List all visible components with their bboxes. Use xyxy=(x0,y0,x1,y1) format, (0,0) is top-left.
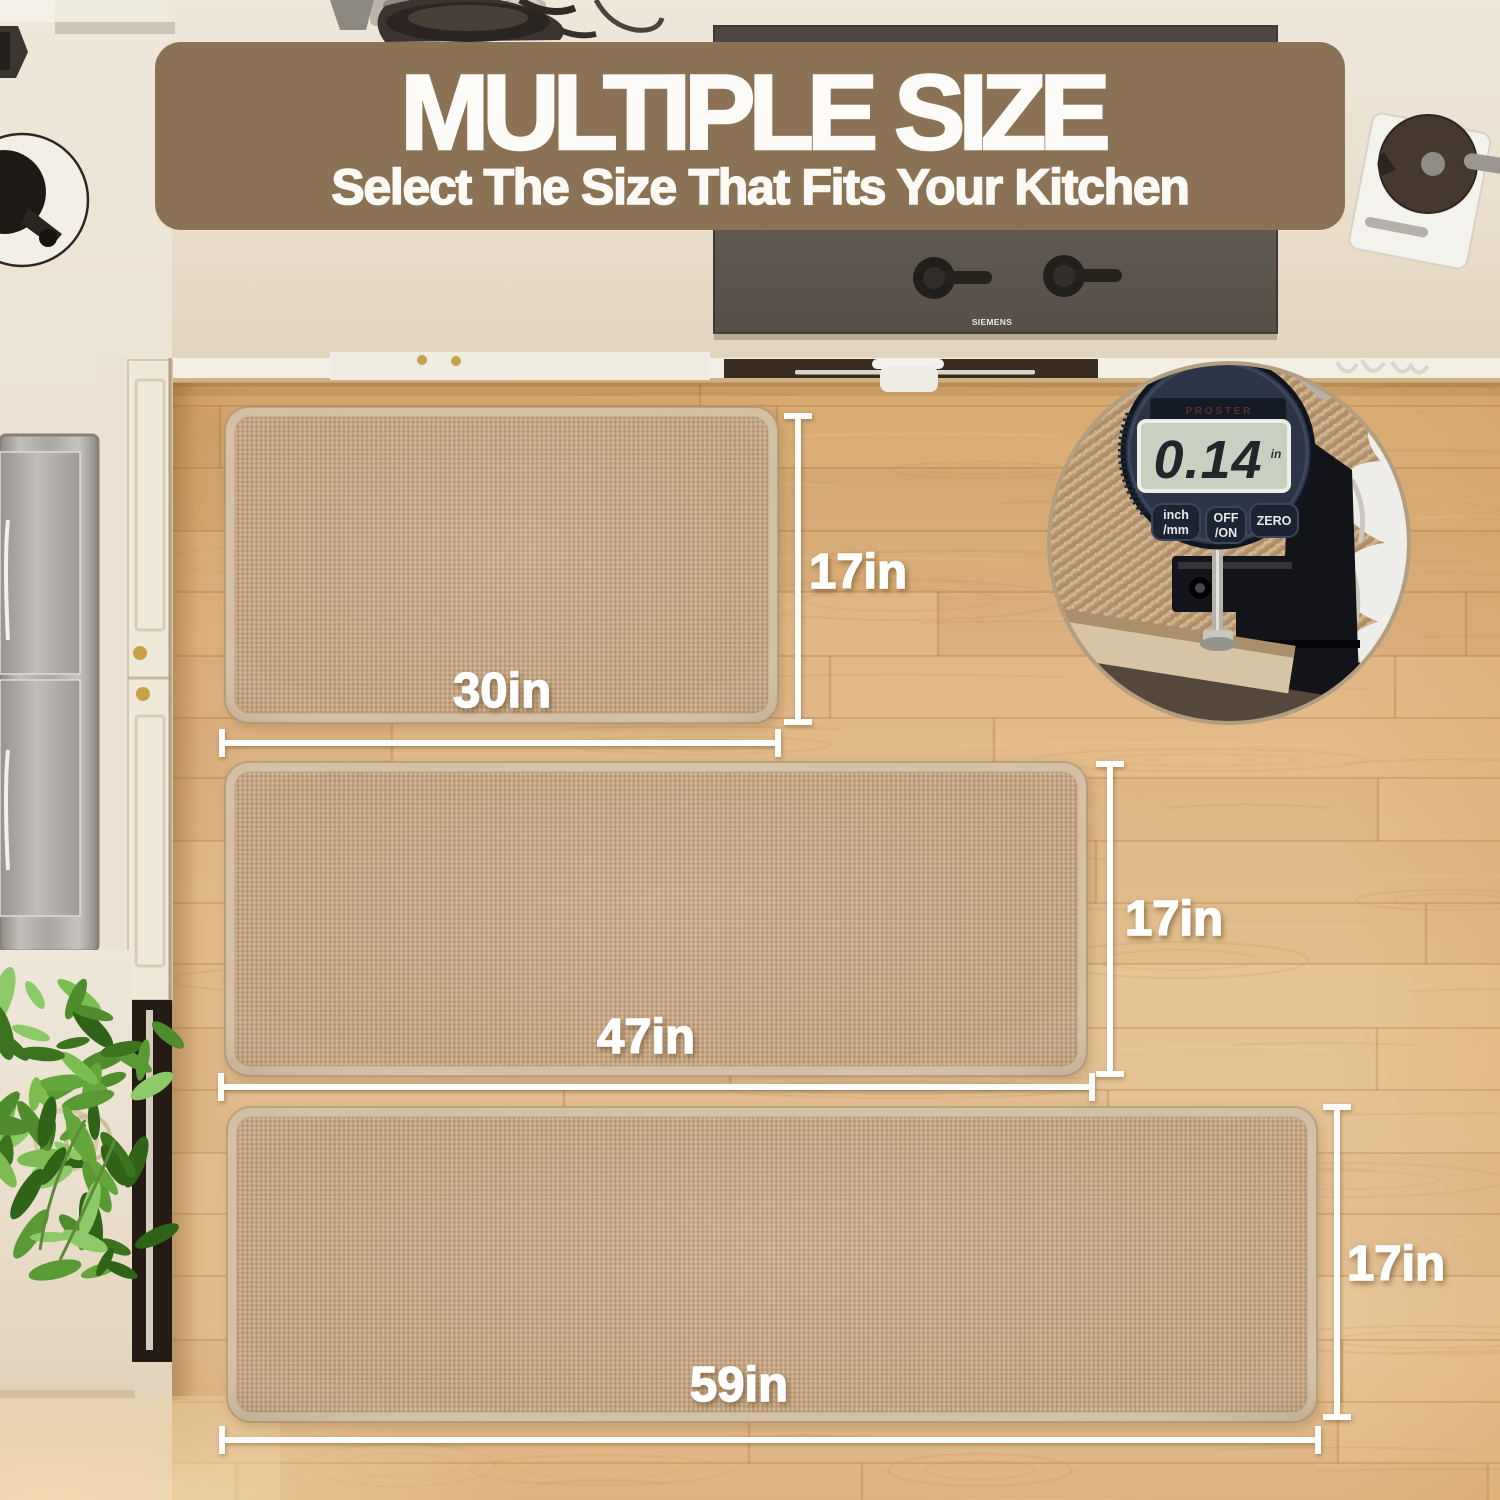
svg-text:47in: 47in xyxy=(597,1010,695,1064)
svg-text:17in: 17in xyxy=(1347,1237,1445,1291)
svg-text:OFF: OFF xyxy=(1214,511,1239,525)
svg-text:MULTIPLE SIZE: MULTIPLE SIZE xyxy=(400,52,1107,172)
svg-text:/ON: /ON xyxy=(1215,526,1237,540)
svg-text:ZERO: ZERO xyxy=(1257,514,1292,528)
svg-text:59in: 59in xyxy=(690,1358,788,1412)
svg-text:17in: 17in xyxy=(809,545,907,599)
svg-text:/mm: /mm xyxy=(1163,523,1189,537)
svg-text:30in: 30in xyxy=(453,664,551,718)
svg-text:in: in xyxy=(1271,447,1282,461)
svg-text:SIEMENS: SIEMENS xyxy=(972,317,1012,327)
svg-text:Select The Size That Fits Your: Select The Size That Fits Your Kitchen xyxy=(331,159,1188,215)
svg-text:inch: inch xyxy=(1163,508,1189,522)
svg-text:0.14: 0.14 xyxy=(1153,430,1262,490)
svg-text:17in: 17in xyxy=(1125,892,1223,946)
svg-text:P R O S T E R: P R O S T E R xyxy=(1186,406,1252,417)
